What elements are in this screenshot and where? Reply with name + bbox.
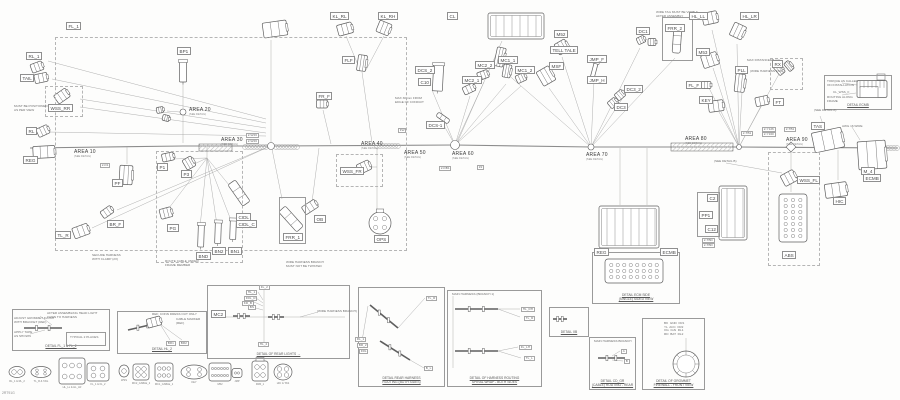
- component-label: MC2_1: [462, 76, 482, 84]
- wiring-diagram-canvas: FL_1RL_1TAILWSS_RRRLREGBP1TL_RBR_FPFP1P3…: [0, 0, 900, 400]
- connector-caption: TL_R & TAIL: [24, 380, 58, 383]
- code-label: BR1: [166, 341, 176, 346]
- code-label: FW: [398, 128, 406, 133]
- drawing-number: 2RT91G: [2, 391, 15, 395]
- component-label: DCS-1: [426, 121, 445, 129]
- component-label: DC3_2: [624, 85, 643, 93]
- component-label: OB: [314, 215, 326, 223]
- note-text: AFTER ASSEMBLING HEAD LIGHT CONN TO HARN…: [47, 312, 97, 319]
- code-label: Z2: [477, 165, 484, 170]
- component-label: PLL: [735, 66, 748, 74]
- detail-caption: DETAIL ECM SIDE (SINGLE) SIDED VIEW: [593, 294, 679, 302]
- component-label: WSS_RR: [48, 104, 73, 112]
- component-label: PG: [167, 224, 179, 232]
- component-label: MSF: [549, 62, 564, 70]
- code-label: FL_2: [259, 285, 270, 290]
- note-text: MUST BE POSITIONED AS PER VIEW: [14, 105, 48, 112]
- note-text: WIRE HARNESS BRANCH MUST NOT BE TWISTED: [286, 261, 324, 268]
- component-label: ECMB: [660, 248, 678, 256]
- note-text: SECURE HARNESS WITH CLAMP (2X): [92, 254, 121, 261]
- component-label: C12: [705, 225, 718, 233]
- code-label: 2-Y160: [762, 132, 776, 137]
- component-label: KL_RH: [378, 12, 398, 20]
- note-text: (SEE DETAIL A): [814, 109, 836, 113]
- code-label: HL_2: [258, 342, 269, 347]
- dashed-region: [45, 86, 83, 117]
- component-label: MC1_1: [498, 56, 518, 64]
- component-label: TAIL: [20, 74, 34, 82]
- code-label: 2-TB1: [784, 127, 796, 132]
- component-label: RL: [26, 127, 37, 135]
- area-label: AREA 80 (SEE DETAIL): [685, 136, 707, 145]
- component-label: CIDL_C: [236, 220, 257, 228]
- detail-caption: DETAIL HL_2: [118, 348, 206, 352]
- component-label: TL_R: [55, 231, 71, 239]
- component-label: FRR_2: [665, 24, 685, 32]
- component-label: FT: [773, 98, 784, 106]
- component-label: M52: [554, 30, 568, 38]
- code-label: TL_R: [426, 296, 437, 301]
- component-label: FL_1: [66, 22, 81, 30]
- component-label: DCS_2: [415, 66, 435, 74]
- code-label: FRL: [359, 349, 368, 354]
- code-label: 2-TBD: [702, 243, 715, 248]
- component-label: BND: [196, 252, 211, 260]
- area-sub: (SEE DETAIL): [221, 143, 243, 146]
- connector-caption: HIC & TAS: [266, 382, 300, 385]
- note-text: (WIRE HARNESS BRANCH): [317, 310, 357, 314]
- area-sub: (SEE DETAIL): [74, 155, 96, 158]
- note-text: ROUTE CABLE UNDER FRAME MEMBER: [165, 260, 199, 267]
- detail-box: DETAIL XB: [549, 307, 589, 337]
- note-text: (WIRE HARNESS END): [750, 70, 783, 74]
- detail-box: DETAIL OF REAR LIGHTS →: [207, 285, 350, 359]
- code-label: 2-TB1: [741, 131, 753, 136]
- connector-caption: MC1_CABLE_1: [147, 383, 181, 386]
- code-label: HL_RH: [521, 307, 535, 312]
- note-text: CABLE MARKER (REF): [176, 318, 200, 325]
- component-label: DC3: [614, 103, 628, 111]
- component-label: DC1: [636, 27, 650, 35]
- dashed-region: [768, 152, 820, 266]
- component-label: WSS_FR: [340, 167, 364, 175]
- component-label: BP1: [177, 47, 191, 55]
- component-label: JMP_F: [587, 55, 607, 63]
- note-text: TYPICAL 2 PLACES: [70, 336, 98, 340]
- code-label: RL_1: [355, 337, 366, 342]
- component-label: HL_LL: [689, 12, 708, 20]
- note-text: AWG 16 WIRE: [842, 125, 863, 129]
- area-label: AREA 20 (SEE DETAIL): [189, 107, 211, 116]
- code-label: 2-DB1: [439, 166, 451, 171]
- component-label: C2: [707, 194, 718, 202]
- area-label: AREA 90 (SEE DETAIL): [786, 137, 808, 146]
- component-label: MC1_2: [515, 66, 535, 74]
- component-label: HIC: [833, 197, 846, 205]
- detail-box: DETAIL REAR HARNESS ROUTING (BOTH SIDES): [358, 287, 445, 387]
- area-sub: (SEE DETAIL): [586, 158, 608, 161]
- code-label: BR2: [179, 341, 189, 346]
- component-label: WSS_FL: [797, 176, 820, 184]
- code-label: BR_2: [357, 343, 368, 348]
- label-overlay: FL_1RL_1TAILWSS_RRRLREGBP1TL_RBR_FPFP1P3…: [0, 0, 900, 400]
- detail-caption: DETAIL OF REAR LIGHTS →: [208, 353, 349, 357]
- code-label: B_L: [424, 366, 433, 371]
- code-label: BS: [248, 305, 256, 310]
- code-label: TL_R: [524, 316, 535, 321]
- area-sub: (SEE DETAIL): [452, 157, 474, 160]
- component-label: C10: [418, 78, 431, 86]
- code-label: 2-W26: [246, 139, 259, 144]
- detail-caption: DETAIL OF HARNESS ROUTING SPIRAL WRAP - …: [448, 377, 541, 385]
- component-label: RX: [772, 60, 783, 68]
- detail-caption: DETAIL XB: [550, 331, 588, 335]
- component-label: P3: [181, 170, 192, 178]
- component-label: MC2_2: [475, 61, 495, 69]
- area-sub: (SEE DETAIL): [786, 143, 808, 146]
- note-text: (SEE DETAIL B): [714, 160, 737, 164]
- area-label: AREA 10 (SEE DETAIL): [74, 149, 96, 158]
- area-label: AREA 70 (SEE DETAIL): [586, 152, 608, 161]
- area-sub: (SEE DETAIL): [189, 113, 211, 116]
- code-label: TL_L: [524, 356, 535, 361]
- area-label: AREA 60 (SEE DETAIL): [452, 151, 474, 160]
- area-sub: (SEE DETAIL): [361, 147, 383, 150]
- component-label: FL_F: [686, 81, 702, 89]
- component-label: P1: [157, 163, 168, 171]
- connector-caption: M52: [203, 383, 237, 386]
- detail-box: DETAIL OF HARNESS ROUTING SPIRAL WRAP - …: [447, 290, 542, 387]
- note-text: APPLY TAPE AS SHOWN: [14, 331, 32, 338]
- component-label: REG: [594, 248, 609, 256]
- area-sub: (SEE DETAIL): [404, 156, 426, 159]
- component-label: KL_RL: [330, 12, 349, 20]
- component-label: ABS: [782, 251, 796, 259]
- component-label: PP1: [699, 211, 713, 219]
- note-text: TORQUE AS CALLED ON INSTALLATION: [827, 80, 858, 87]
- component-label: RL_1: [26, 52, 42, 60]
- detail-caption: DETAIL OF GROMMET FIREWALL - FRONT VIEW: [643, 380, 704, 388]
- note-text: MAIN HARNESS BRANCH: [594, 340, 631, 344]
- code-label: HL_1: [246, 290, 257, 295]
- component-label: M53: [696, 48, 710, 56]
- component-label: HL_LR: [740, 12, 759, 20]
- component-label: JMP_H: [587, 76, 607, 84]
- component-label: MC2: [211, 310, 226, 318]
- code-label: 2-W26: [246, 133, 259, 138]
- area-label: AREA 40 (SEE DETAIL): [361, 141, 383, 150]
- code-label: 2-D1: [100, 163, 110, 168]
- detail-caption: DETAIL REAR HARNESS ROUTING (BOTH SIDES): [359, 377, 444, 385]
- area-label: AREA 30 (SEE DETAIL): [221, 137, 243, 146]
- component-label: PF: [112, 179, 123, 187]
- note-text: BK GND FR1 YL ACC FR2 OG IGN RL1 RD BAT …: [664, 322, 684, 337]
- component-label: KEY: [699, 96, 713, 104]
- note-text: MAIN HARNESS (BRANCH 1): [452, 293, 494, 297]
- component-label: TAS: [811, 122, 825, 130]
- connector-caption: HL_LL & HL_LR: [55, 386, 89, 389]
- component-label: FR_F: [316, 92, 332, 100]
- note-text: MAX 30 mm FROM EDGE OF CONDUIT: [395, 97, 424, 104]
- code-label: B: [624, 359, 630, 364]
- connector-caption: FL_1 & FL_2: [81, 383, 115, 386]
- component-label: REG: [23, 156, 38, 164]
- note-text: ROUTING ALONG FRAME: [827, 96, 853, 103]
- component-label: CL: [447, 12, 458, 20]
- component-label: BR_F: [107, 220, 124, 228]
- component-label: TELL TALE: [550, 46, 578, 54]
- code-label: A: [621, 349, 627, 354]
- note-text: ADJUST GROMMET FLUSH WITH BRACKET (REF): [14, 317, 54, 324]
- component-label: BN1: [228, 247, 242, 255]
- component-label: FRR_1: [283, 233, 303, 241]
- detail-caption: DETAIL CD_GR (CABLE) ROUTING - REAR: [590, 380, 635, 388]
- detail-box: DETAIL ECM SIDE (SINGLE) SIDED VIEW: [592, 252, 680, 304]
- component-label: BN2: [212, 247, 226, 255]
- component-label: FLF: [342, 56, 355, 64]
- code-label: FL_LH: [519, 345, 532, 350]
- area-sub: (SEE DETAIL): [685, 142, 707, 145]
- component-label: ECMB: [863, 174, 881, 182]
- area-label: AREA 50 (SEE DETAIL): [404, 150, 426, 159]
- component-label: OPS: [374, 235, 389, 243]
